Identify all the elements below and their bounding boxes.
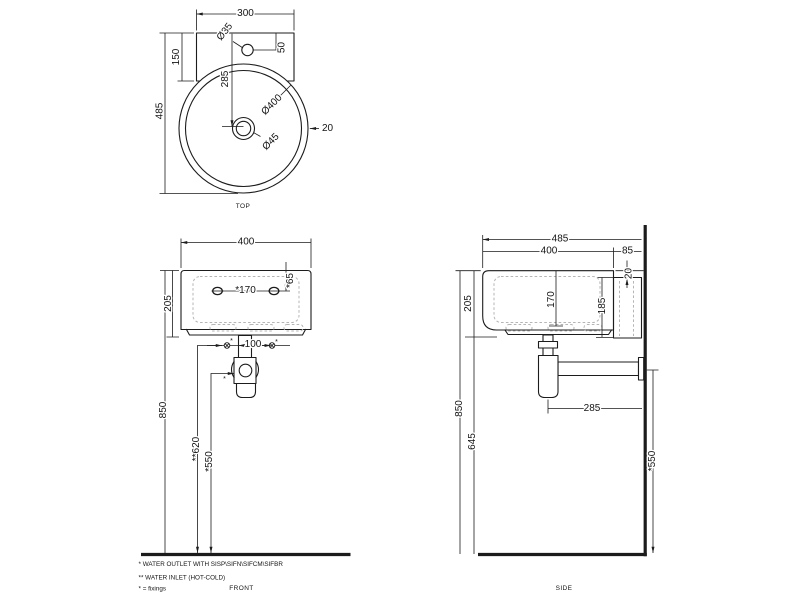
dim-rim-width: 20 <box>322 123 334 134</box>
front-view: 400 205 850 *170 *65 100 **620 *550 * * … <box>141 237 351 593</box>
note-water-outlet: * WATER OUTLET WITH SISP\SIFN\SIFCM\SIFB… <box>139 561 284 568</box>
note-water-inlet: ** WATER INLET (HOT-COLD) <box>139 575 226 582</box>
fixing-hole-left <box>212 287 224 294</box>
dim-overall-depth-side: 485 <box>552 234 569 245</box>
dim-wall-gap: 85 <box>622 246 634 257</box>
washbasin-dimension-drawing: 300 150 485 285 50 Ø35 Ø400 Ø45 20 TOP <box>0 0 800 600</box>
dim-faucet-offset: 50 <box>277 42 288 54</box>
dim-mount-height-side: 850 <box>454 400 465 417</box>
trap-tailpipe-side <box>543 335 553 342</box>
trap-tailpipe-lower <box>543 348 553 356</box>
basin-front-base <box>187 330 306 336</box>
dim-plate-depth: 150 <box>171 48 182 65</box>
trap-nut-side <box>539 342 558 349</box>
dim-fixing-drop: *65 <box>285 273 296 288</box>
wall-bracket-hidden-lines <box>620 281 634 336</box>
outlet-asterisk: * <box>223 376 226 383</box>
fixing-hole-right <box>268 287 280 294</box>
footnotes: * WATER OUTLET WITH SISP\SIFN\SIFCM\SIFB… <box>139 561 284 593</box>
dim-bracket-height: 185 <box>597 297 608 314</box>
side-view: 485 400 85 20 205 170 185 285 850 645 *5… <box>454 225 659 592</box>
dim-outlet-height-side: *550 <box>647 450 658 471</box>
trap-nut-circle <box>239 364 252 377</box>
dim-basin-depth: 400 <box>541 246 558 257</box>
dim-underside-height: 645 <box>467 433 478 450</box>
dim-outlet-height-front: *550 <box>204 451 215 472</box>
wall-bracket <box>614 278 642 339</box>
technical-drawing-sheet: 300 150 485 285 50 Ø35 Ø400 Ø45 20 TOP <box>0 0 800 600</box>
waste-pipe <box>558 362 639 376</box>
dim-inlet-spacing: 100 <box>245 339 262 350</box>
faucet-hole <box>242 44 253 55</box>
view-caption-side: SIDE <box>556 585 573 592</box>
pipe-wall-flange <box>639 358 644 381</box>
dim-outlet-to-wall: 285 <box>584 403 601 414</box>
view-caption-front: FRONT <box>229 585 253 592</box>
dim-fixing-spacing: *170 <box>235 285 256 296</box>
top-view: 300 150 485 285 50 Ø35 Ø400 Ø45 20 TOP <box>155 8 334 210</box>
dim-inner-depth: 170 <box>546 291 557 308</box>
dim-height-side: 205 <box>463 295 474 312</box>
dim-mount-height-front: 850 <box>158 401 169 418</box>
dim-overall-depth: 485 <box>155 102 166 119</box>
wall-fixing-symbol-left <box>224 343 230 349</box>
dim-inlet-height: **620 <box>191 436 202 461</box>
view-caption-top: TOP <box>236 203 250 210</box>
trap-bottle-side <box>539 356 559 398</box>
dim-drain-offset: 285 <box>220 70 231 87</box>
dim-rim-drop: 20 <box>624 268 635 280</box>
note-fixings: * = fixings <box>139 586 166 593</box>
fixing-asterisk-left: * <box>230 338 233 345</box>
fixing-asterisk-right: * <box>275 339 278 346</box>
dim-width: 400 <box>238 237 255 248</box>
dim-plate-width: 300 <box>237 8 254 19</box>
dim-height-front: 205 <box>163 295 174 312</box>
